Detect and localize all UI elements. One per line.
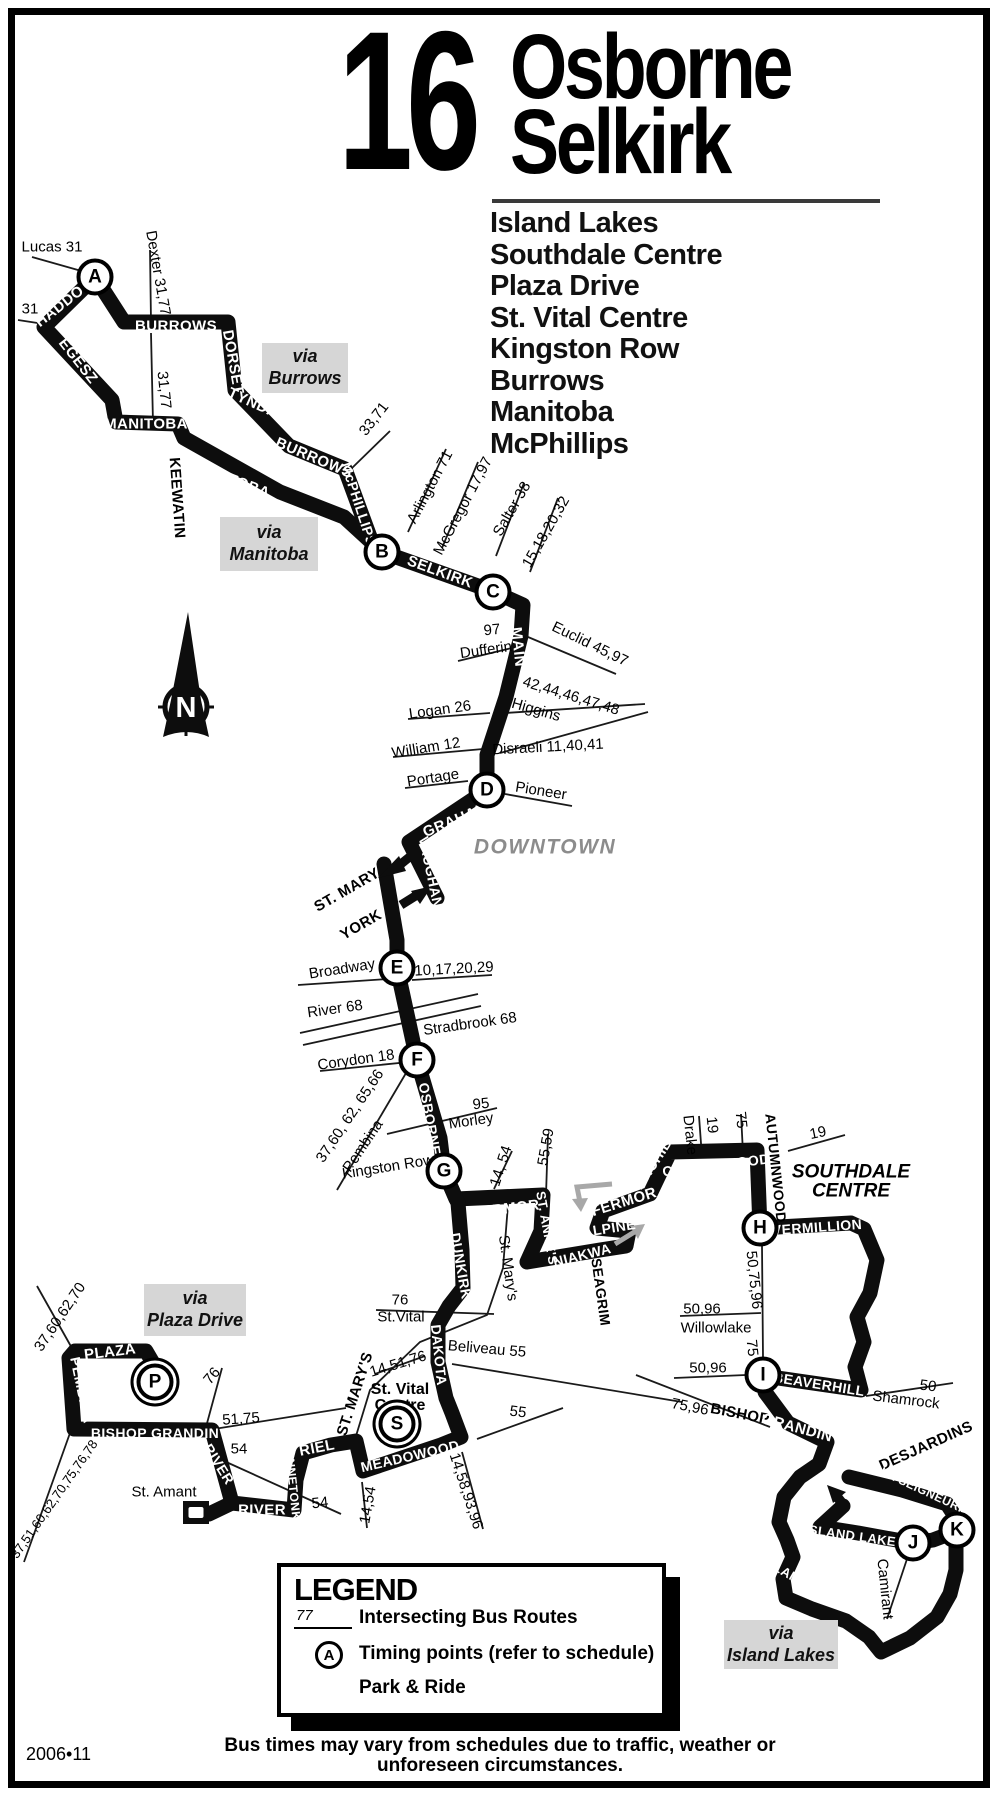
disclaimer-line2: unforeseen circumstances. (0, 1756, 1000, 1776)
map-label: 75 (744, 1339, 761, 1357)
park-and-ride-icon (183, 1501, 209, 1524)
legend-route-line-sample (294, 1627, 352, 1629)
timing-point-C: C (475, 574, 512, 611)
map-label: 55 (509, 1404, 527, 1421)
map-label: DOWNTOWN (474, 837, 616, 858)
map-label: Willowlake (681, 1321, 752, 1336)
map-label: 31,77 (155, 371, 174, 410)
timing-point-S: S (379, 1406, 416, 1443)
timing-point-E: E (379, 950, 416, 987)
destination: Burrows (490, 366, 722, 398)
map-label: 75 (733, 1111, 750, 1129)
destination: Southdale Centre (490, 240, 722, 272)
map-label: 19 (704, 1116, 721, 1134)
via-box-line: via (768, 1623, 793, 1645)
map-label: SOUTHDALE (792, 1163, 910, 1182)
via-box-line: Burrows (268, 368, 341, 390)
legend-timing-label: Timing points (refer to schedule) (359, 1643, 654, 1665)
map-label: St. Amant (131, 1485, 196, 1500)
timing-point-G: G (426, 1153, 463, 1190)
map-label: 54 (311, 1495, 329, 1512)
legend-title: LEGEND (294, 1572, 417, 1608)
route-name: Osborne Selkirk (510, 30, 790, 181)
via-box-line: Manitoba (230, 544, 309, 566)
destination-list: Island LakesSouthdale CentrePlaza DriveS… (490, 208, 722, 460)
map-label: St. Vital (371, 1382, 429, 1398)
map-label: RIVER (238, 1503, 286, 1518)
timing-point-I: I (745, 1357, 782, 1394)
map-label: 50 (919, 1378, 937, 1395)
timing-point-F: F (399, 1042, 436, 1079)
map-label: St.Vital (377, 1310, 424, 1325)
timing-point-K: K (939, 1512, 976, 1549)
map-label: MANITOBA (104, 417, 188, 432)
destination: Island Lakes (490, 208, 722, 240)
destination: McPhillips (490, 429, 722, 461)
via-box-line: via (182, 1288, 207, 1310)
via-box: viaIsland Lakes (724, 1620, 838, 1669)
via-box-line: Plaza Drive (147, 1310, 243, 1332)
north-compass-icon: N (158, 612, 214, 737)
legend-sample-route-number: 77 (296, 1607, 313, 1624)
map-label: BURROWS (135, 319, 217, 334)
via-box: viaPlaza Drive (144, 1284, 246, 1336)
via-box-line: Island Lakes (727, 1645, 835, 1667)
legend-park-ride-label: Park & Ride (359, 1677, 466, 1699)
disclaimer-line1: Bus times may vary from schedules due to… (0, 1736, 1000, 1756)
timing-point-D: D (469, 772, 506, 809)
map-label: 10,17,20,29 (414, 959, 494, 978)
legend-intersecting-label: Intersecting Bus Routes (359, 1607, 578, 1629)
map-label: MAIN (508, 626, 527, 667)
legend: LEGEND 77 Intersecting Bus Routes A Timi… (277, 1563, 666, 1717)
route-number: 16 (338, 14, 474, 188)
map-label: Lucas 31 (22, 240, 83, 255)
via-box: viaManitoba (220, 517, 318, 571)
timing-point-A: A (77, 259, 114, 296)
map-label: 19 (808, 1124, 827, 1142)
map-label: 76 (392, 1293, 409, 1308)
svg-text:N: N (176, 692, 197, 724)
map-label: CENTRE (812, 1182, 890, 1201)
destination: Kingston Row (490, 334, 722, 366)
map-label: BISHOP GRANDIN (91, 1426, 219, 1440)
timing-point-P: P (137, 1364, 174, 1401)
legend-timing-point-icon: A (315, 1641, 343, 1669)
destination: Manitoba (490, 397, 722, 429)
title-underline (492, 199, 880, 203)
transit-map-page: N 16 Osborne Selkirk Island LakesSouthda… (0, 0, 1000, 1798)
intersecting-route-lines (18, 250, 953, 1619)
via-box: viaBurrows (262, 343, 348, 393)
map-label: 50,96 (689, 1361, 727, 1376)
map-label: 51,75 (222, 1410, 261, 1428)
via-box-line: via (292, 346, 317, 368)
timing-point-B: B (364, 534, 401, 571)
map-label: 54 (231, 1442, 248, 1457)
timing-point-H: H (742, 1210, 779, 1247)
timing-point-J: J (895, 1525, 932, 1562)
disclaimer: Bus times may vary from schedules due to… (0, 1736, 1000, 1776)
destination: St. Vital Centre (490, 303, 722, 335)
map-label: 50,96 (683, 1302, 721, 1317)
via-box-line: via (256, 522, 281, 544)
destination: Plaza Drive (490, 271, 722, 303)
map-label: 97 (483, 622, 501, 639)
map-label: Drake (680, 1114, 699, 1155)
